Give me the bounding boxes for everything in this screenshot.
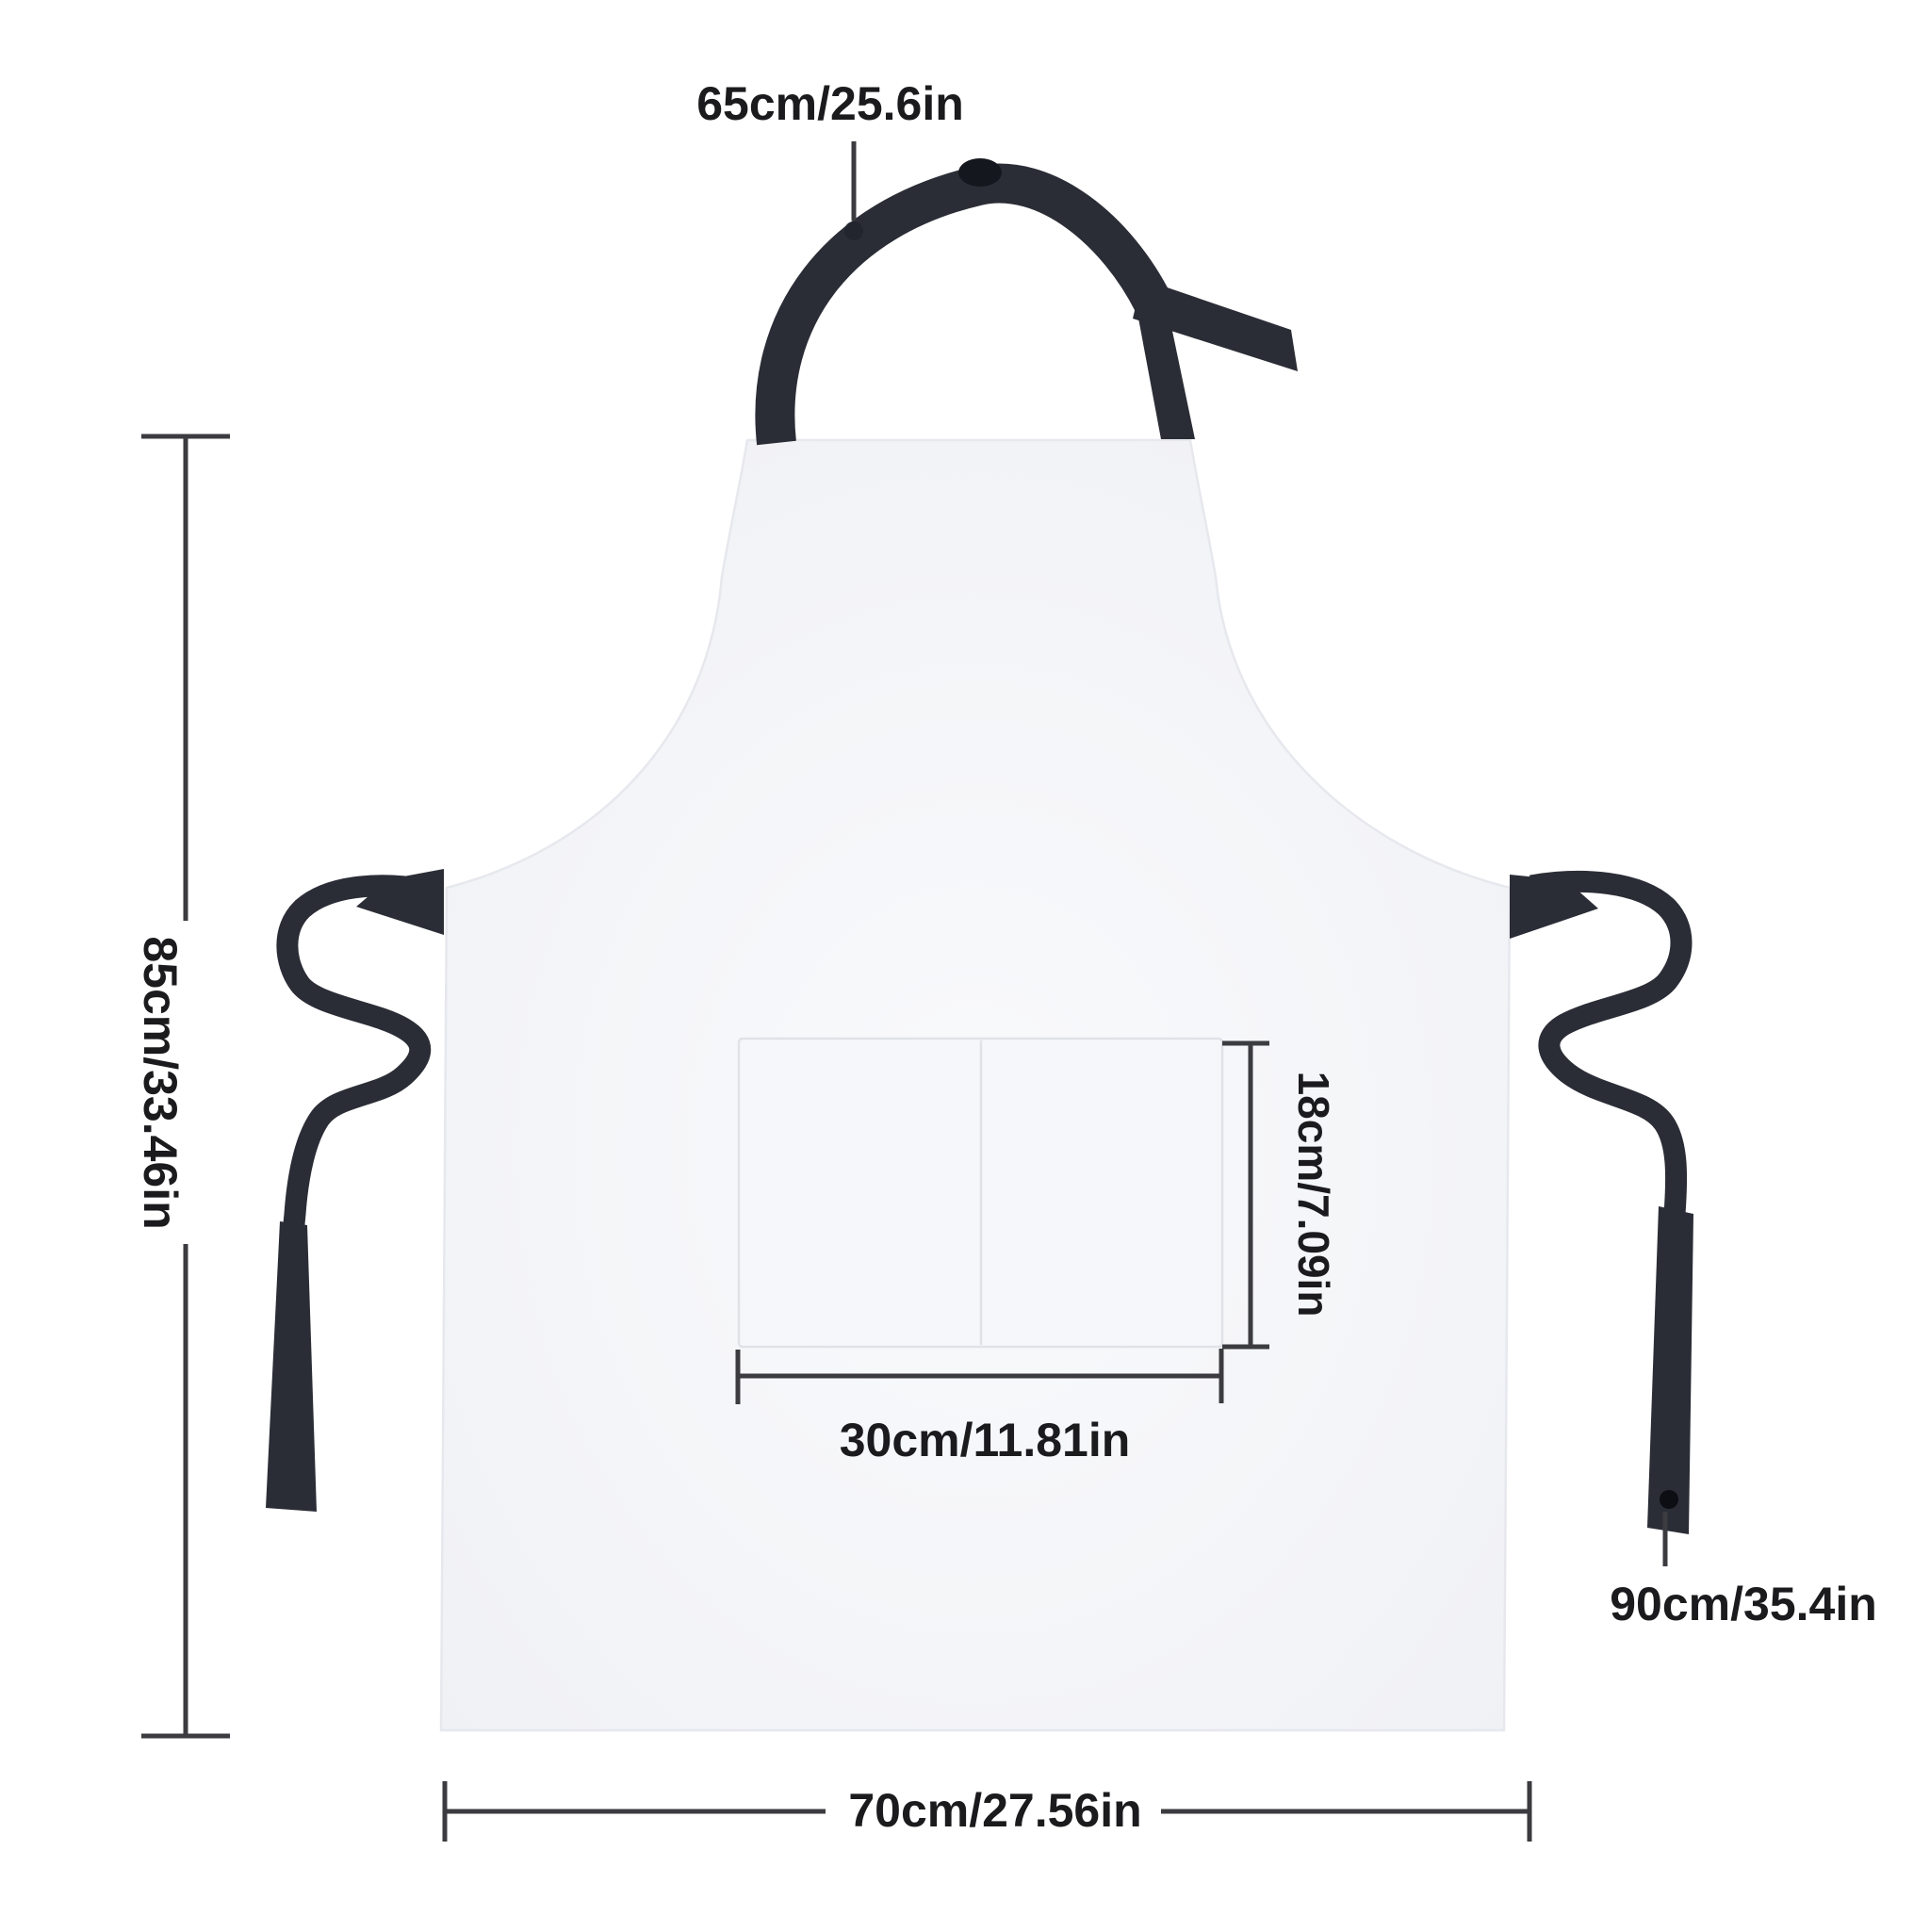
apron-diagram-svg bbox=[0, 0, 1930, 1932]
pocket-height-measurement-label: 18cm/7.09in bbox=[1292, 1072, 1335, 1318]
neck-strap-adjuster-knob bbox=[958, 158, 1002, 187]
right-waist-tie bbox=[1510, 875, 1693, 1534]
neck-leader-dot bbox=[844, 221, 863, 240]
left-tie-tail bbox=[266, 1221, 317, 1512]
left-tie-ribbon bbox=[287, 886, 426, 1244]
neck-strap-leader bbox=[844, 141, 863, 240]
left-waist-tie bbox=[266, 869, 444, 1512]
right-tie-tail bbox=[1647, 1206, 1693, 1534]
right-tie-grommet bbox=[1660, 1490, 1678, 1509]
right-tie-ribbon bbox=[1531, 881, 1681, 1235]
pocket-width-measurement-label: 30cm/11.81in bbox=[840, 1416, 1131, 1464]
body-width-measurement-label: 70cm/27.56in bbox=[848, 1787, 1141, 1834]
neck-strap-arc bbox=[775, 184, 1153, 443]
waist-tie-measurement-label: 90cm/35.4in bbox=[1610, 1580, 1877, 1628]
body-height-measurement-label: 85cm/33.46in bbox=[137, 936, 184, 1229]
neck-strap-measurement-label: 65cm/25.6in bbox=[696, 80, 964, 127]
apron-size-diagram: 65cm/25.6in 85cm/33.46in 18cm/7.09in 30c… bbox=[0, 0, 1930, 1932]
